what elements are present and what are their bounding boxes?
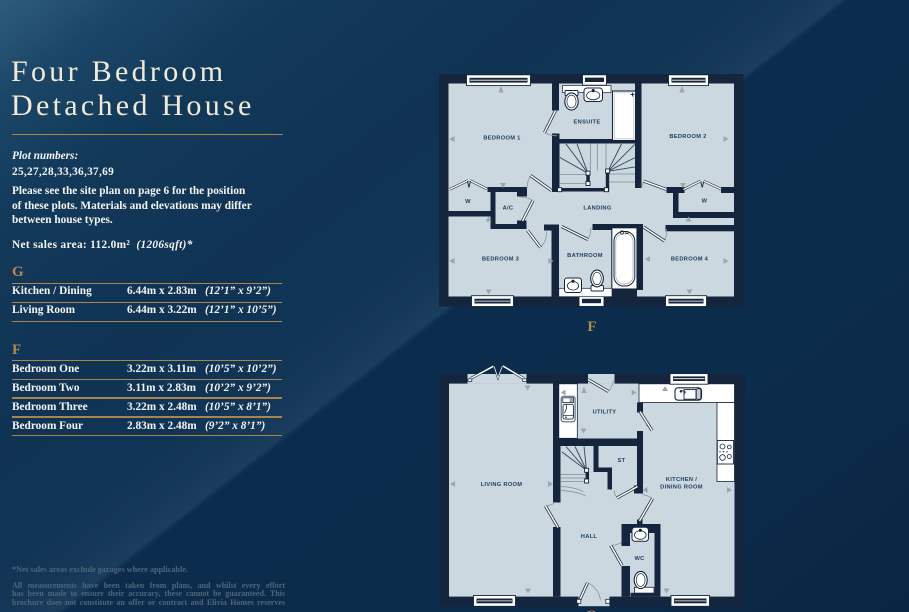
svg-text:WC: WC [634,556,644,562]
svg-text:BATHROOM: BATHROOM [567,253,603,259]
svg-text:BEDROOM 3: BEDROOM 3 [482,257,519,263]
svg-text:DINING ROOM: DINING ROOM [660,485,703,491]
svg-text:HALL: HALL [581,534,598,540]
svg-text:W: W [702,199,708,205]
svg-text:BEDROOM 2: BEDROOM 2 [669,134,706,140]
svg-text:UTILITY: UTILITY [593,410,617,416]
svg-text:ST: ST [618,458,626,464]
svg-text:BEDROOM 4: BEDROOM 4 [671,257,709,263]
svg-text:LANDING: LANDING [583,206,611,212]
svg-text:ENSUITE: ENSUITE [574,120,601,126]
svg-text:KITCHEN /: KITCHEN / [666,477,697,483]
svg-text:LIVING ROOM: LIVING ROOM [481,482,523,488]
svg-text:BEDROOM 1: BEDROOM 1 [483,136,520,142]
svg-text:W: W [465,199,471,205]
svg-text:A/C: A/C [503,206,514,212]
